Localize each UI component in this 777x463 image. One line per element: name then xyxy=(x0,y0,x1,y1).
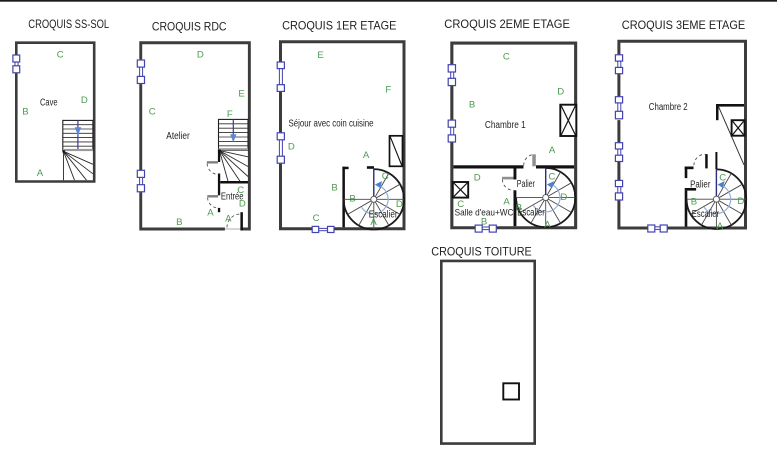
svg-text:B: B xyxy=(176,217,182,228)
svg-text:D: D xyxy=(197,50,204,61)
svg-text:C: C xyxy=(457,199,464,210)
svg-text:Chambre 1: Chambre 1 xyxy=(485,120,526,131)
svg-text:A: A xyxy=(225,213,232,224)
svg-text:Escalier: Escalier xyxy=(692,209,720,220)
svg-text:B: B xyxy=(469,100,475,111)
svg-text:F: F xyxy=(227,109,233,120)
svg-text:CROQUIS SS-SOL: CROQUIS SS-SOL xyxy=(28,17,109,31)
svg-text:A: A xyxy=(370,217,377,228)
svg-text:B: B xyxy=(22,107,28,118)
svg-text:F: F xyxy=(385,85,391,96)
svg-text:B: B xyxy=(331,183,337,194)
svg-text:A: A xyxy=(503,197,510,208)
svg-text:A: A xyxy=(544,220,551,231)
svg-text:Palier: Palier xyxy=(517,179,536,190)
svg-text:Atelier: Atelier xyxy=(166,131,190,142)
svg-text:C: C xyxy=(503,52,510,63)
svg-text:B: B xyxy=(516,203,522,214)
svg-text:CROQUIS 3EME ETAGE: CROQUIS 3EME ETAGE xyxy=(622,18,745,32)
svg-text:C: C xyxy=(719,173,726,184)
svg-text:A: A xyxy=(549,145,556,156)
svg-text:E: E xyxy=(317,50,323,61)
svg-text:A: A xyxy=(363,150,370,161)
svg-text:Palier: Palier xyxy=(690,179,711,190)
svg-text:C: C xyxy=(237,185,244,196)
svg-text:D: D xyxy=(396,199,403,210)
svg-text:C: C xyxy=(548,171,555,182)
svg-text:CROQUIS 1ER ETAGE: CROQUIS 1ER ETAGE xyxy=(282,19,396,33)
svg-text:CROQUIS RDC: CROQUIS RDC xyxy=(152,20,227,34)
svg-text:Chambre 2: Chambre 2 xyxy=(649,102,688,113)
svg-text:D: D xyxy=(288,142,295,153)
svg-text:C: C xyxy=(57,50,64,61)
svg-text:A: A xyxy=(207,207,214,218)
svg-text:A: A xyxy=(37,168,44,179)
svg-text:B: B xyxy=(691,197,697,208)
svg-text:D: D xyxy=(737,196,744,207)
svg-text:D: D xyxy=(81,95,88,106)
svg-text:Séjour avec coin cuisine: Séjour avec coin cuisine xyxy=(289,119,374,130)
svg-text:C: C xyxy=(313,213,320,224)
svg-text:C: C xyxy=(149,107,156,118)
svg-text:D: D xyxy=(557,87,564,98)
svg-text:C: C xyxy=(382,171,389,182)
svg-text:Cave: Cave xyxy=(40,97,58,108)
svg-text:D: D xyxy=(474,172,481,183)
svg-text:A: A xyxy=(717,221,724,232)
svg-text:E: E xyxy=(238,88,244,99)
svg-text:CROQUIS TOITURE: CROQUIS TOITURE xyxy=(431,245,531,259)
svg-text:CROQUIS 2EME ETAGE: CROQUIS 2EME ETAGE xyxy=(444,17,570,31)
svg-text:D: D xyxy=(560,192,567,203)
svg-text:D: D xyxy=(239,198,246,209)
